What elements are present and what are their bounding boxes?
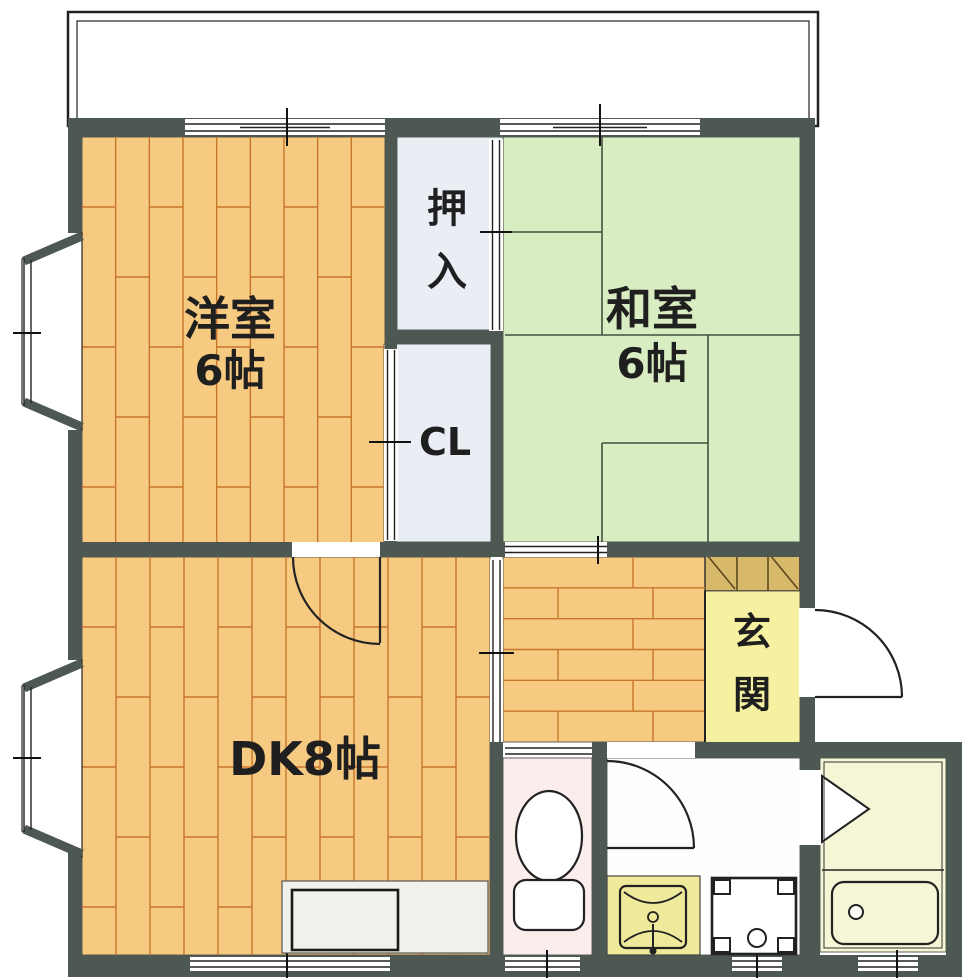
label-japanese-room: 和室 <box>606 282 698 336</box>
sink-vanity <box>607 876 700 955</box>
kitchen-sink <box>292 890 398 950</box>
toilet <box>514 791 584 930</box>
washing-machine-pan <box>712 878 796 954</box>
shoe-cabinet <box>705 553 800 591</box>
label-oshiire-1: 押 <box>427 186 467 232</box>
label-closet: CL <box>419 420 471 464</box>
kitchen-counter <box>282 881 488 953</box>
balcony <box>68 12 818 126</box>
label-genkan-2: 関 <box>733 673 771 717</box>
label-western-size: 6帖 <box>194 346 265 395</box>
oshiire-floor <box>397 137 503 330</box>
floor-plan: 洋室 6帖 和室 6帖 DK8帖 押 入 CL 玄 関 <box>0 0 980 980</box>
label-dk: DK8帖 <box>229 732 381 786</box>
label-japanese-size: 6帖 <box>616 339 687 388</box>
bathtub <box>832 882 938 944</box>
entrance-door <box>799 608 902 697</box>
label-western-room: 洋室 <box>184 292 276 346</box>
label-oshiire-2: 入 <box>427 249 467 295</box>
bay-window-western <box>13 233 82 430</box>
bathtub-drain <box>849 905 863 919</box>
toilet-door <box>505 744 592 757</box>
label-genkan-1: 玄 <box>733 610 771 654</box>
bay-window-dk <box>13 660 82 857</box>
